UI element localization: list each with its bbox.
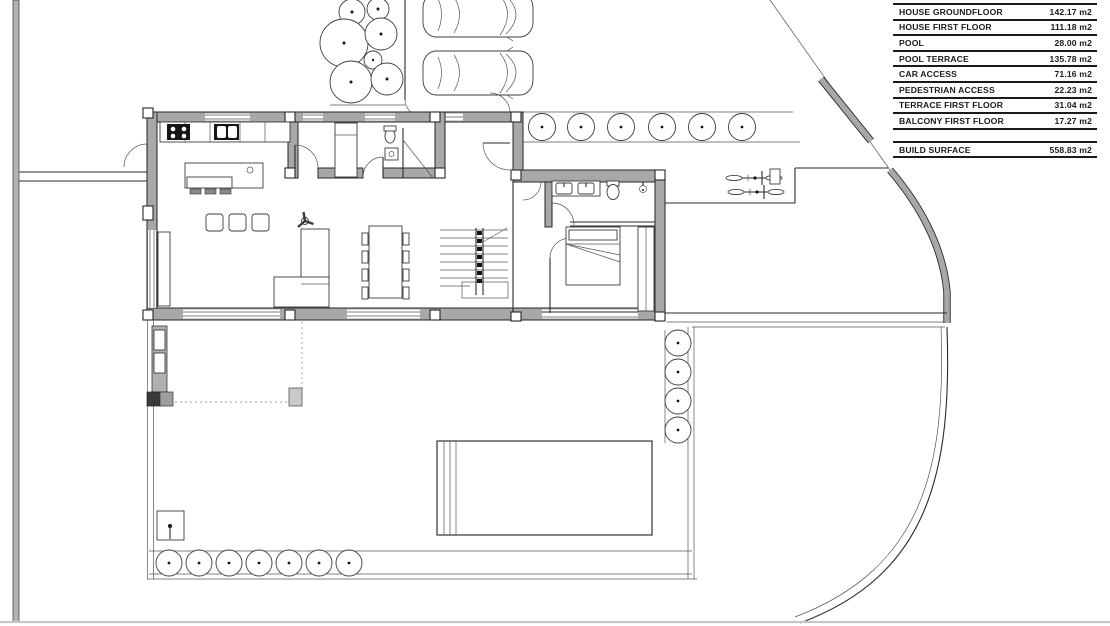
dining-chair: [403, 251, 409, 263]
cooktop-icon: [167, 124, 190, 140]
table-spacer: [893, 130, 1097, 141]
bathroom: [552, 181, 647, 200]
area-label: HOUSE GROUNDFLOOR: [899, 7, 1003, 17]
outdoor-kitchen: [147, 326, 173, 406]
wing-east-wall: [655, 170, 665, 320]
bicycle-icon: [728, 185, 784, 199]
bike-box: [770, 169, 780, 184]
wall-shelf: [158, 232, 170, 306]
area-value: 142.17 m2: [1050, 7, 1092, 17]
area-value: 558.83 m2: [1050, 145, 1092, 155]
table-row: BALCONY FIRST FLOOR 17.27 m2: [893, 114, 1097, 130]
hall-door-arc: [523, 182, 541, 200]
dining-chair: [362, 251, 368, 263]
pool-terrace: [147, 320, 697, 579]
dining-table: [369, 226, 402, 298]
area-value: 22.23 m2: [1054, 85, 1092, 95]
side-entry-door-arc: [124, 144, 147, 167]
table-row: PEDESTRIAN ACCESS 22.23 m2: [893, 83, 1097, 99]
curved-boundary-wall: [890, 170, 947, 323]
table-row: CAR ACCESS 71.16 m2: [893, 67, 1097, 83]
area-label: POOL TERRACE: [899, 54, 969, 64]
bed-pillow: [569, 230, 617, 240]
area-value: 111.18 m2: [1051, 22, 1093, 32]
site-plan-page: { "surface_table": { "rows": [ {"label":…: [0, 0, 1110, 626]
shower-icon: [640, 182, 647, 193]
pouf: [252, 214, 269, 231]
north-wall: [147, 112, 523, 122]
first-floor-overhang-dashed: [168, 322, 302, 402]
area-value: 17.27 m2: [1054, 116, 1092, 126]
table-row: HOUSE GROUNDFLOOR 142.17 m2: [893, 5, 1097, 21]
bedroom: [566, 227, 654, 311]
ceiling-fan-icon: [298, 212, 314, 227]
dining-chair: [403, 287, 409, 299]
living-room: [158, 212, 409, 307]
area-value: 71.16 m2: [1054, 69, 1092, 79]
left-boundary-wall: [13, 0, 19, 622]
planting-strip-top: [523, 112, 800, 142]
surface-table: HOUSE GROUNDFLOOR 142.17 m2 HOUSE FIRST …: [893, 3, 1097, 158]
wing-north-wall: [513, 170, 665, 182]
terrace-column-base: [289, 388, 302, 406]
wc-sink-icon: [385, 148, 398, 160]
plot-corner-curve-outer: [800, 327, 948, 623]
bar-stool: [190, 189, 201, 194]
bush-column-right: [665, 330, 691, 443]
area-value: 135.78 m2: [1050, 54, 1092, 64]
sofa: [274, 277, 329, 307]
bbq-icon: [147, 392, 160, 406]
area-value: 31.04 m2: [1054, 100, 1092, 110]
bar-stool: [220, 189, 231, 194]
bush-row-bottom: [156, 550, 362, 576]
table-row: POOL 28.00 m2: [893, 36, 1097, 52]
tree-cluster: [320, 0, 403, 103]
wc-door-arc: [363, 157, 383, 177]
dining-chair: [362, 269, 368, 281]
sofa-chaise: [301, 229, 329, 278]
table-row: TERRACE FIRST FLOOR 31.04 m2: [893, 99, 1097, 115]
area-label: POOL: [899, 38, 924, 48]
table-row: HOUSE FIRST FLOOR 111.18 m2: [893, 21, 1097, 37]
planter: [157, 511, 184, 540]
pool: [437, 441, 652, 535]
area-label: PEDESTRIAN ACCESS: [899, 85, 995, 95]
bar-stool: [205, 189, 216, 194]
bicycle-parking: [726, 169, 784, 199]
toilet-icon: [607, 185, 619, 200]
entry-door-arc: [483, 143, 510, 170]
pantry-appliance: [335, 123, 357, 177]
area-label: BUILD SURFACE: [899, 145, 971, 155]
porch-door-arc: [490, 93, 510, 112]
dining-chair: [362, 287, 368, 299]
pouf: [206, 214, 223, 231]
build-surface-row: BUILD SURFACE 558.83 m2: [893, 141, 1097, 159]
dining-chair: [362, 233, 368, 245]
car-icon: [423, 0, 533, 41]
car-icon: [423, 47, 533, 99]
bush-row: [529, 114, 756, 141]
table-row: POOL TERRACE 135.78 m2: [893, 52, 1097, 68]
area-value: 28.00 m2: [1054, 38, 1092, 48]
diagonal-boundary-wall: [821, 79, 871, 141]
area-label: BALCONY FIRST FLOOR: [899, 116, 1004, 126]
staircase: [440, 228, 508, 298]
dining-chair: [403, 233, 409, 245]
plot-corner-curve-inner: [795, 327, 942, 617]
area-label: CAR ACCESS: [899, 69, 957, 79]
kitchen: [160, 122, 357, 194]
area-label: TERRACE FIRST FLOOR: [899, 100, 1003, 110]
pouf: [229, 214, 246, 231]
dining-chair: [403, 269, 409, 281]
area-label: HOUSE FIRST FLOOR: [899, 22, 992, 32]
